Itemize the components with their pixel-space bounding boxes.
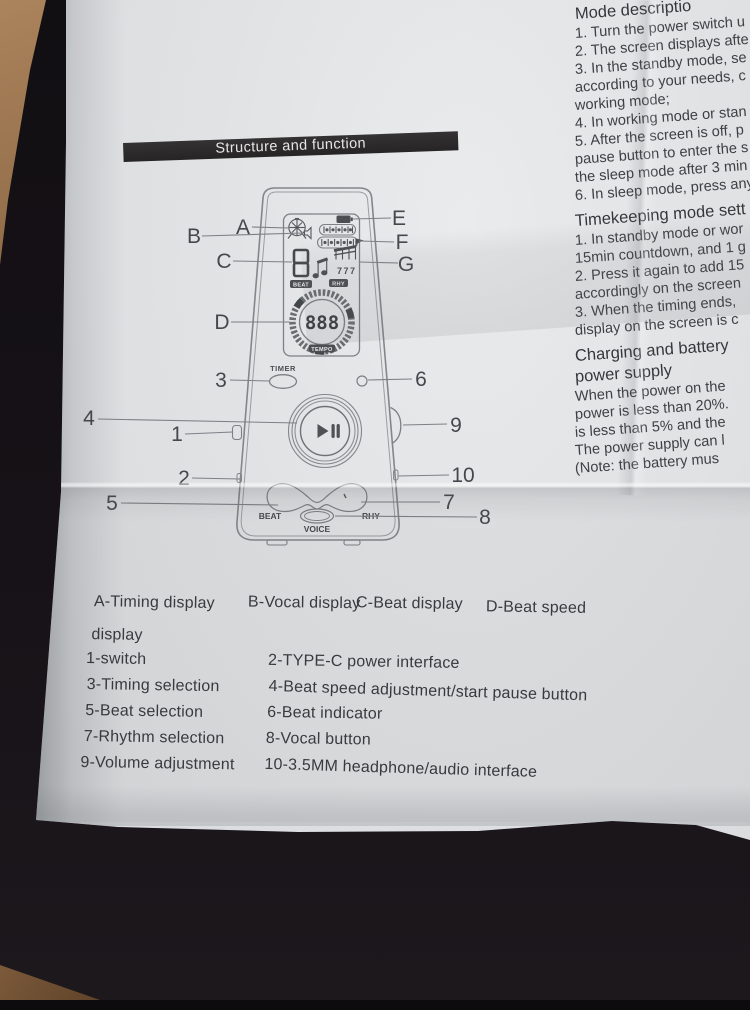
legend-item-7: 7-Rhythm selection [84,728,225,748]
legend-display-B: B-Vocal display [248,594,361,614]
legend-item-5: 5-Beat selection [85,702,203,722]
legend-item-10: 10-3.5MM headphone/audio interface [264,756,537,782]
legend-display-A: A-Timing display [94,593,215,613]
legend-item-9: 9-Volume adjustment [80,754,234,774]
legend-item-6: 6-Beat indicator [267,704,383,724]
legend-item-3: 3-Timing selection [87,676,220,696]
legend-item-8: 8-Vocal button [266,730,371,750]
legend-display-wrap: display [91,626,142,645]
legend-display-C: C-Beat display [356,594,463,614]
legend-item-1: 1-switch [86,650,147,669]
photo-of-manual-page: Structure and function Mode descriptio 1… [0,0,750,1000]
legend-display-D: D-Beat speed [486,598,587,618]
legend-item-2: 2-TYPE-C power interface [268,652,460,673]
legend-item-4: 4-Beat speed adjustment/start pause butt… [268,678,587,705]
